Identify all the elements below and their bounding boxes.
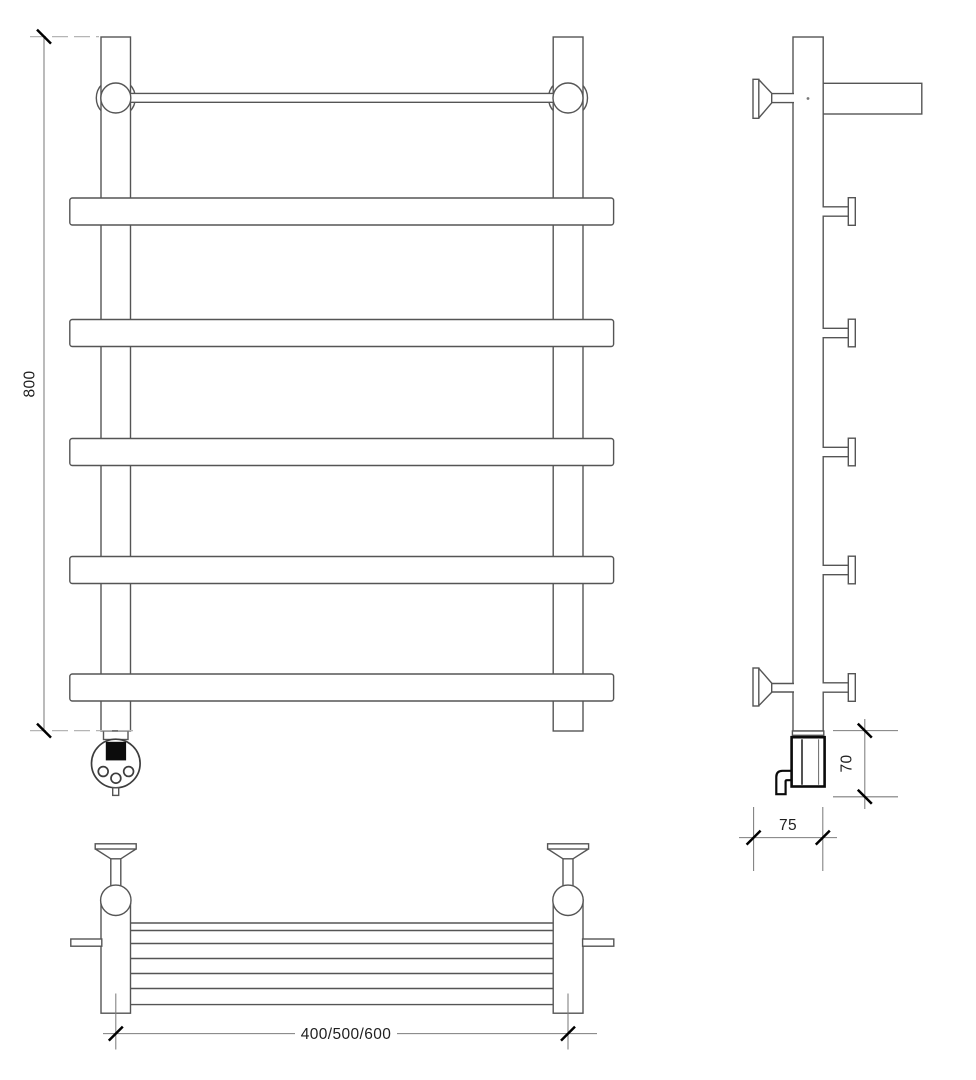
front-view [70,37,614,795]
center-mark [807,97,810,100]
power-cable [776,771,792,794]
wall-depth-label: 75 [779,817,797,834]
mount-cone [573,849,588,859]
towel-bar [70,439,614,466]
ball-joint-top-view [101,885,131,915]
mount-plate [95,844,136,849]
heating-element-control [92,731,141,795]
right-post [553,37,583,731]
ball-joint-top-view [553,885,583,915]
top-view [71,844,614,1013]
bar-pins [823,198,856,702]
pin-cap [848,438,855,466]
post-end-cap [792,731,823,735]
mount-stem [563,859,573,888]
towel-bar [70,674,614,701]
right-ball-joint [553,83,583,113]
bracket-plate [753,79,759,118]
heater-display [106,742,126,761]
bar-pin [823,674,856,702]
heater-button [98,767,108,777]
pin-cap [848,674,855,702]
top-rail-fill [116,93,568,102]
heater-button [111,773,121,783]
dimension-heater-70: 70 [833,719,898,809]
side-post [793,37,823,731]
mount-cone [121,849,136,859]
bar-pin [823,438,856,466]
pin-cap [848,319,855,347]
towel-bar [70,198,614,225]
heater-stem [113,788,119,796]
pin-stem-fill [823,328,849,337]
pin-stem-fill [823,683,849,692]
bar-pin [823,319,856,347]
heating-element-side [776,731,824,794]
bracket-cone [759,668,772,683]
left-ball-joint [101,83,131,113]
bar-pin [823,198,856,226]
wall-bracket-top [753,79,795,118]
mount-cone [95,849,110,859]
height-dimension-label: 800 [22,370,39,397]
bar-overhang [71,939,102,946]
bracket-cone [759,692,772,706]
heater-height-label: 70 [839,754,856,772]
pin-stem-fill [823,207,849,216]
pin-stem-fill [823,447,849,456]
bracket-stem-fill [772,94,795,103]
bar-overhang [583,939,614,946]
dimension-width-options: 400/500/600 [103,994,597,1050]
bracket-plate [753,668,759,706]
bracket-stem-fill [772,684,795,693]
towel-bar [70,557,614,584]
heater-neck [104,731,129,740]
pin-cap [848,198,855,226]
left-post [101,37,131,731]
pin-cap [848,556,855,584]
wall-bracket-bottom [753,668,795,706]
mount-plate [548,844,589,849]
bracket-cone [759,103,772,118]
pin-stem-fill [823,565,849,574]
bracket-cone [759,80,772,94]
width-options-label: 400/500/600 [301,1026,392,1043]
dimension-depth-75: 75 [739,807,837,871]
heater-button [124,767,134,777]
drawing-canvas: 800 [0,0,976,1080]
top-shelf-profile [823,83,922,114]
mount-cone [548,849,563,859]
heater-housing [792,737,825,786]
towel-bar [70,320,614,347]
bar-pin [823,556,856,584]
towel-rail-technical-drawing: 800 [0,0,976,1080]
mount-stem [111,859,121,888]
side-view [753,37,922,794]
